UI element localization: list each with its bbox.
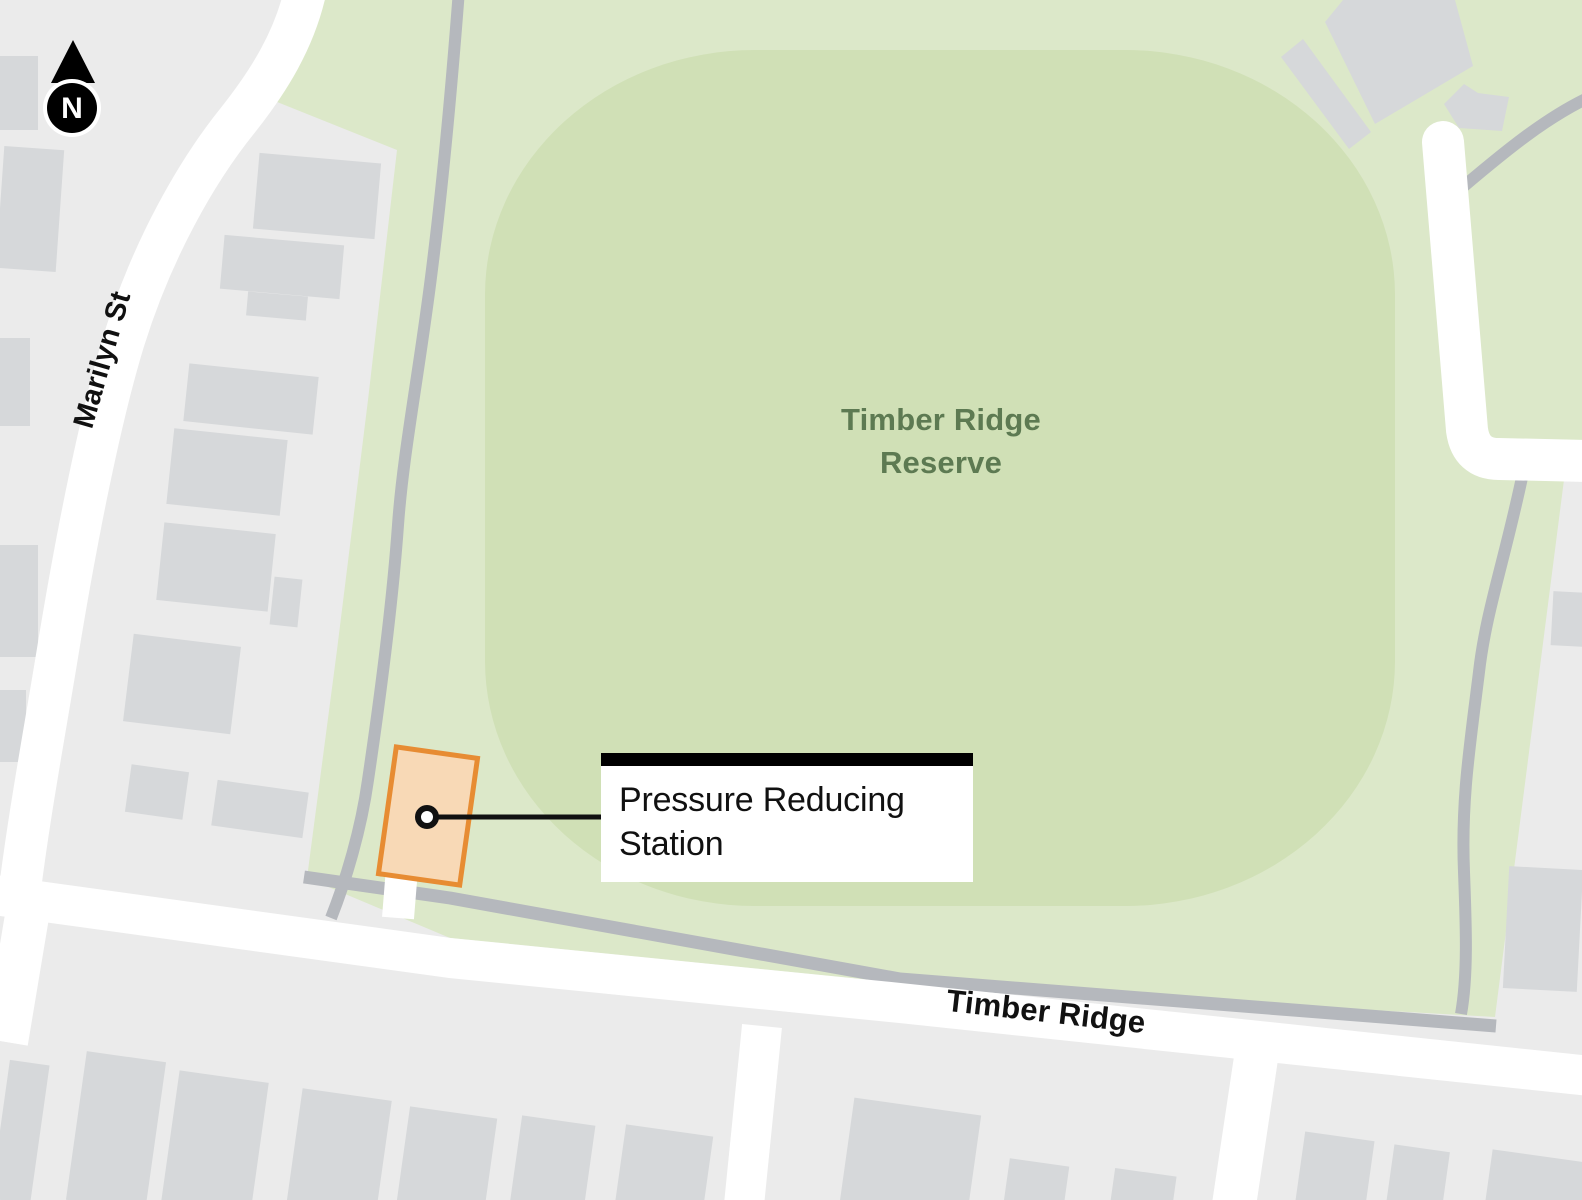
- side-street-south-mid: [744, 1026, 762, 1200]
- building: [1295, 1131, 1374, 1200]
- side-street-southwest: [6, 898, 30, 1042]
- building: [0, 545, 38, 657]
- building: [0, 56, 38, 130]
- building: [220, 235, 344, 299]
- building: [395, 1106, 497, 1200]
- building: [839, 1098, 981, 1200]
- building: [166, 428, 287, 515]
- building: [286, 1088, 392, 1200]
- callout-top-bar: [601, 753, 973, 766]
- building: [270, 577, 303, 628]
- reserve-label-line2: Reserve: [841, 441, 1041, 484]
- building: [1551, 591, 1582, 647]
- station-marker-dot: [418, 808, 436, 826]
- building: [161, 1070, 268, 1200]
- reserve-label-line1: Timber Ridge: [841, 398, 1041, 441]
- building: [0, 146, 64, 272]
- building: [156, 522, 276, 611]
- side-street-southeast: [1234, 1058, 1256, 1200]
- building: [1386, 1144, 1450, 1200]
- building: [125, 764, 189, 820]
- building: [0, 338, 30, 426]
- reserve-label: Timber Ridge Reserve: [841, 398, 1041, 484]
- building: [253, 153, 381, 239]
- map-canvas: [0, 0, 1582, 1200]
- building: [123, 634, 241, 735]
- north-label: N: [61, 92, 83, 126]
- building: [1503, 866, 1582, 992]
- callout: Pressure Reducing Station: [601, 753, 973, 882]
- building: [611, 1124, 713, 1200]
- location-map: Marilyn St Timber Ridge Reserve Timber R…: [0, 0, 1582, 1200]
- callout-title: Pressure Reducing Station: [601, 766, 973, 882]
